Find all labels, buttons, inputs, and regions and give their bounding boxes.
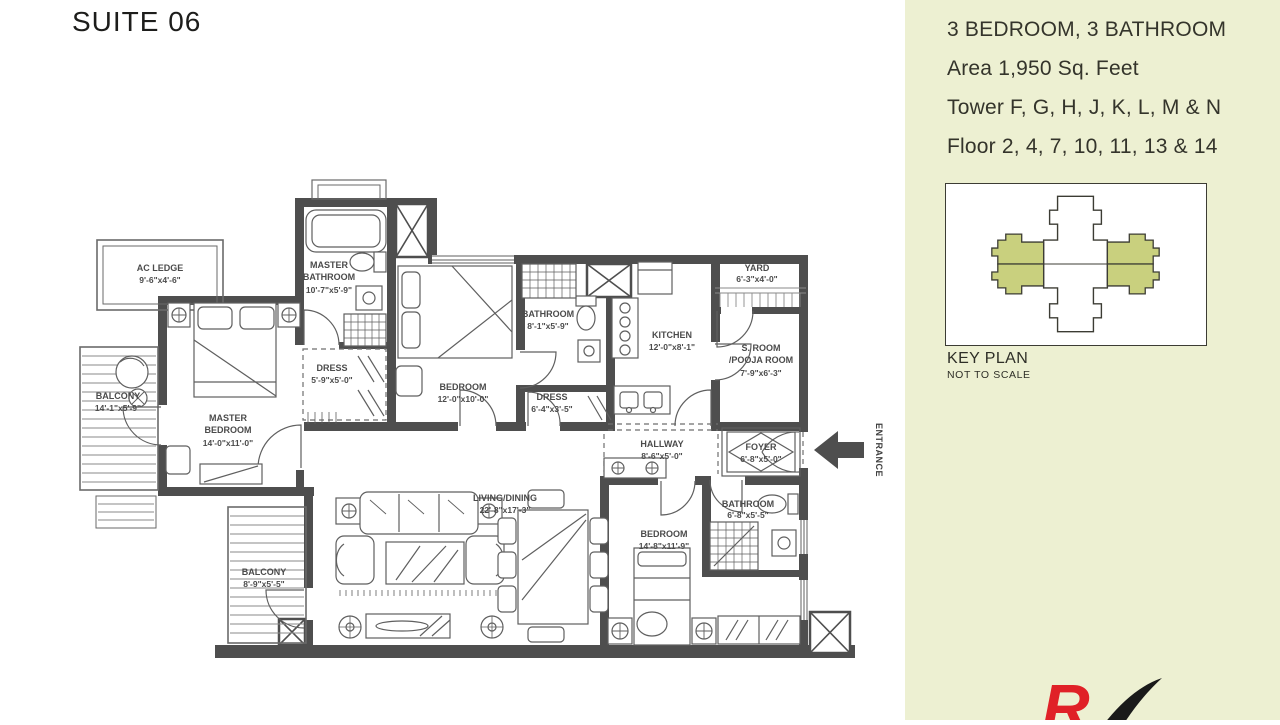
floor-plan-drawing: ENTRANCE AC LEDGE 9'-6"x4'-6" BALCONY 14… — [0, 0, 905, 720]
entrance: ENTRANCE — [814, 423, 884, 477]
bathroom2-label: BATHROOM — [522, 309, 574, 319]
bedroom2-bed — [396, 266, 512, 396]
hallway-label: HALLWAY — [640, 439, 683, 449]
kitchen-label: KITCHEN — [652, 330, 692, 340]
key-plan-drawing — [946, 184, 1205, 344]
logo-swoosh — [1104, 678, 1162, 720]
hallway-dims: 8'-6"x5'-0" — [641, 451, 682, 461]
balcony1-dims: 14'-1"x5'-9" — [95, 403, 141, 413]
key-plan-subtitle: NOT TO SCALE — [947, 369, 1031, 381]
living-dining-label: LIVING/DINING — [473, 493, 537, 503]
spec-list: 3 BEDROOM, 3 BATHROOM Area 1,950 Sq. Fee… — [905, 0, 1280, 166]
foyer-dims: 6'-8"x5'-0" — [740, 454, 781, 464]
spec-area: Area 1,950 Sq. Feet — [947, 49, 1280, 88]
kitchen-dims: 12'-0"x8'-1" — [649, 342, 695, 352]
balcony2-dims: 8'-9"x5'-5" — [243, 579, 284, 589]
logo-letter-r: R — [1042, 674, 1090, 720]
dress1-label: DRESS — [316, 363, 347, 373]
brand-logo-graphic: R — [1040, 674, 1240, 720]
living-dining-dims: 22'-8"x17'-3" — [480, 505, 531, 515]
spec-bed-bath: 3 BEDROOM, 3 BATHROOM — [947, 10, 1280, 49]
keyplan-left-wing — [992, 234, 1044, 294]
bedroom3-dims: 14'-8"x11'-9" — [639, 541, 689, 551]
master-bathroom-label-2: BATHROOM — [303, 272, 355, 282]
master-bedroom-label-2: BEDROOM — [205, 425, 252, 435]
master-bedroom-label-1: MASTER — [209, 413, 248, 423]
entrance-arrow-icon — [814, 431, 864, 469]
foyer-label: FOYER — [745, 442, 777, 452]
bedroom3-label: BEDROOM — [641, 529, 688, 539]
master-bedroom-dims: 14'-0"x11'-0" — [203, 438, 253, 448]
keyplan-right-wing — [1107, 234, 1159, 294]
info-panel: 3 BEDROOM, 3 BATHROOM Area 1,950 Sq. Fee… — [905, 0, 1280, 720]
pooja-room-label-2: /POOJA ROOM — [729, 355, 793, 365]
bathroom3-dims: 6'-8"x5'-5" — [727, 510, 768, 520]
dress2-dims: 6'-4"x3'-5" — [531, 404, 572, 414]
yard-label: YARD — [745, 263, 770, 273]
foyer-inlay — [722, 428, 800, 476]
pooja-room-label-1: S. ROOM — [741, 343, 780, 353]
brand-logo: R — [1040, 674, 1240, 720]
balcony2-label: BALCONY — [242, 567, 287, 577]
balcony1-label: BALCONY — [96, 391, 141, 401]
master-bathroom-dims: 10'-7"x5'-9" — [306, 285, 352, 295]
dress1-dims: 5'-9"x5'-0" — [311, 375, 352, 385]
pooja-room-dims: 7'-9"x6'-3" — [740, 368, 781, 378]
yard-dims: 6'-3"x4'-0" — [736, 274, 777, 284]
master-bed — [166, 303, 300, 484]
hallway-cabinet — [604, 458, 666, 478]
ac-ledge-label: AC LEDGE — [137, 263, 184, 273]
entrance-label: ENTRANCE — [874, 423, 884, 477]
bathroom2-dims: 8'-1"x5'-9" — [527, 321, 568, 331]
bedroom2-label: BEDROOM — [440, 382, 487, 392]
key-plan-title: KEY PLAN — [947, 350, 1028, 368]
bathroom3-label: BATHROOM — [722, 499, 774, 509]
bedroom2-dims: 12'-0"x10'-0" — [438, 394, 489, 404]
floor-plan-area: ENTRANCE AC LEDGE 9'-6"x4'-6" BALCONY 14… — [0, 0, 905, 725]
master-bathroom-label-1: MASTER — [310, 260, 349, 270]
spec-towers: Tower F, G, H, J, K, L, M & N — [947, 88, 1280, 127]
key-plan — [945, 183, 1207, 346]
dress2-label: DRESS — [536, 392, 567, 402]
ac-ledge-dims: 9'-6"x4'-6" — [139, 275, 180, 285]
spec-floors: Floor 2, 4, 7, 10, 11, 13 & 14 — [947, 127, 1280, 166]
